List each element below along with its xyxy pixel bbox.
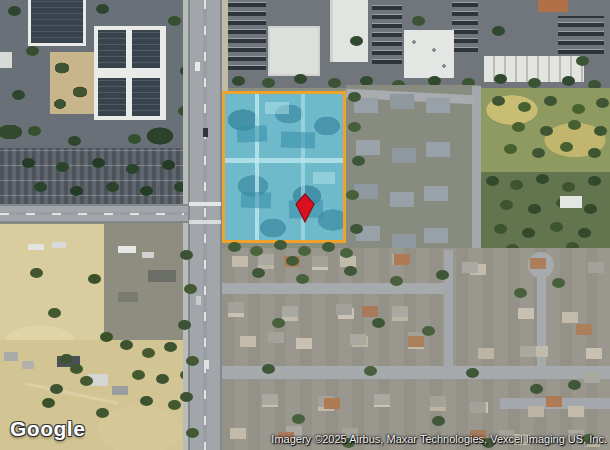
parcel-building	[241, 191, 272, 208]
map-attribution: Imagery ©2025 Airbus, Maxar Technologies…	[271, 433, 607, 445]
car	[196, 296, 201, 305]
house-roofs	[232, 256, 248, 267]
neighborhood-trees	[252, 268, 265, 278]
farm-building	[112, 386, 128, 395]
parked-cars	[372, 4, 402, 64]
parked-cars	[558, 16, 604, 54]
commercial-building	[404, 30, 454, 78]
commercial-building	[484, 56, 584, 82]
cul-de-sac-island	[538, 262, 545, 269]
trailer	[28, 244, 44, 250]
parcel-clearing	[265, 102, 289, 114]
diamond-marker-icon	[295, 193, 315, 223]
street	[200, 366, 610, 379]
street	[537, 274, 546, 368]
office-building	[28, 0, 86, 46]
car	[204, 360, 209, 369]
parked-cars	[452, 0, 478, 52]
lane-marking	[0, 213, 184, 215]
parcel-building	[237, 125, 268, 143]
woods-trees	[486, 176, 499, 186]
scrub-trees	[492, 96, 505, 106]
parcel-highlight[interactable]	[222, 91, 346, 243]
street	[444, 250, 453, 372]
trees	[232, 76, 245, 86]
google-logo[interactable]: Google	[10, 417, 85, 441]
lane-marking	[204, 0, 206, 450]
parking-lot-trees	[22, 158, 35, 168]
industrial-yard	[104, 224, 188, 340]
commercial-building	[268, 26, 320, 76]
residential-neighborhood	[222, 248, 610, 450]
street	[222, 283, 448, 294]
yard-structure	[148, 270, 176, 282]
house-roof	[22, 361, 34, 369]
trailer	[142, 252, 154, 258]
yard-structure	[118, 292, 138, 302]
crosswalk	[189, 202, 221, 206]
house-roof	[560, 196, 582, 208]
commercial-building	[538, 0, 568, 12]
street	[500, 398, 610, 409]
house-roofs	[284, 256, 300, 267]
sidewalk	[222, 0, 228, 91]
farm-trees	[120, 340, 133, 350]
farm-building	[57, 356, 80, 367]
commercial-building	[330, 0, 368, 62]
crosswalk	[189, 220, 221, 224]
car	[203, 128, 208, 137]
trees	[348, 92, 361, 102]
house-roofs	[258, 254, 274, 265]
campus-courtyard	[50, 52, 94, 114]
trailer	[52, 242, 66, 248]
house-roof	[4, 352, 18, 361]
car	[195, 62, 200, 71]
small-building	[0, 52, 12, 68]
office-building-solar-roof	[94, 26, 166, 120]
street	[472, 86, 481, 256]
farm-building	[88, 374, 108, 386]
sidewalk	[183, 0, 188, 450]
field-trees	[30, 268, 43, 278]
location-marker[interactable]	[295, 193, 315, 223]
trees	[228, 242, 241, 252]
trailer	[118, 246, 136, 253]
parcel-clearing	[313, 172, 335, 184]
satellite-map[interactable]: Google Imagery ©2025 Airbus, Maxar Techn…	[0, 0, 610, 450]
trees	[8, 6, 21, 16]
roadside-trees	[180, 250, 193, 260]
parked-cars	[226, 0, 266, 70]
parcel-building	[281, 131, 316, 148]
